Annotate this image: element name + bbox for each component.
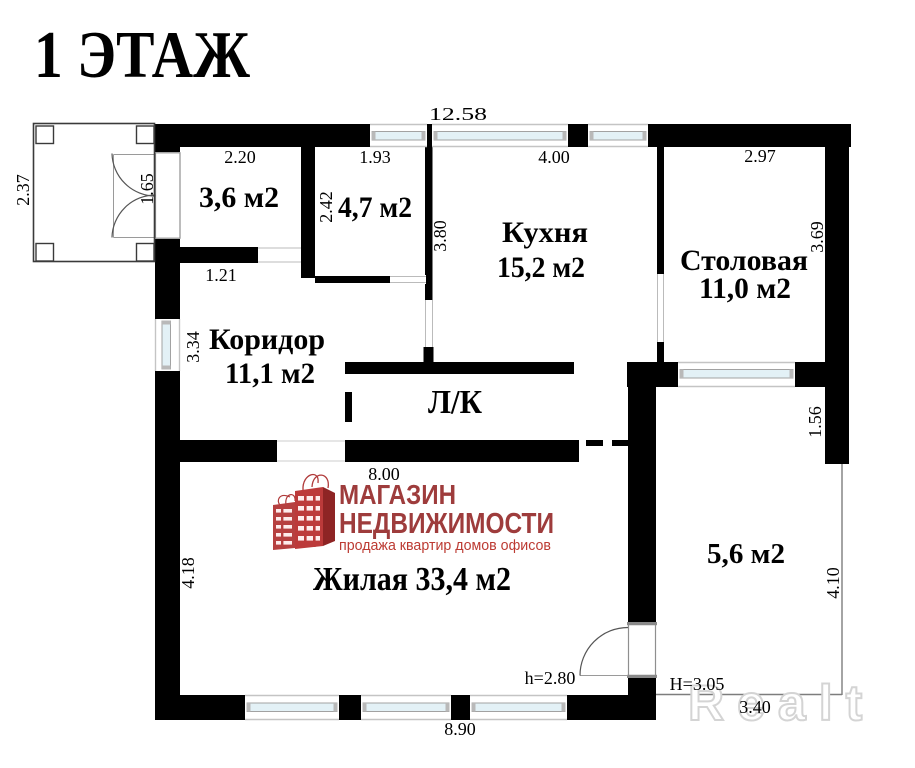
svg-text:3.34: 3.34 — [183, 331, 203, 363]
svg-text:3.40: 3.40 — [739, 697, 771, 717]
svg-text:Коридор: Коридор — [209, 323, 325, 356]
svg-text:3,6 м2: 3,6 м2 — [199, 181, 279, 214]
svg-text:h=2.80: h=2.80 — [525, 668, 576, 688]
svg-text:1.56: 1.56 — [805, 406, 825, 438]
svg-text:1.65: 1.65 — [137, 173, 157, 205]
svg-text:12.58: 12.58 — [429, 104, 487, 124]
svg-text:2.20: 2.20 — [224, 147, 256, 167]
svg-text:H=3.05: H=3.05 — [670, 674, 725, 694]
svg-text:11,1 м2: 11,1 м2 — [225, 357, 315, 390]
svg-text:11,0 м2: 11,0 м2 — [699, 272, 791, 305]
svg-text:3.69: 3.69 — [807, 221, 827, 253]
svg-text:МАГАЗИН: МАГАЗИН — [339, 479, 456, 510]
svg-text:продажа квартир домов офисов: продажа квартир домов офисов — [339, 537, 551, 554]
svg-text:3.80: 3.80 — [430, 220, 450, 252]
svg-text:4,7 м2: 4,7 м2 — [338, 191, 412, 224]
svg-text:Кухня: Кухня — [502, 216, 588, 249]
svg-text:2.37: 2.37 — [13, 174, 33, 206]
svg-text:5,6 м2: 5,6 м2 — [707, 538, 785, 570]
svg-text:Жилая 33,4 м2: Жилая 33,4 м2 — [313, 561, 511, 598]
svg-text:8.90: 8.90 — [444, 719, 476, 739]
svg-text:Л/К: Л/К — [428, 384, 482, 421]
svg-text:2.97: 2.97 — [744, 146, 776, 166]
svg-text:1.21: 1.21 — [205, 265, 237, 285]
svg-text:15,2 м2: 15,2 м2 — [497, 251, 585, 284]
svg-text:4.18: 4.18 — [178, 557, 198, 589]
svg-text:2.42: 2.42 — [316, 191, 336, 223]
svg-text:1 ЭТАЖ: 1 ЭТАЖ — [34, 18, 251, 92]
svg-text:1.93: 1.93 — [359, 147, 391, 167]
svg-text:4.10: 4.10 — [823, 567, 843, 599]
svg-text:НЕДВИЖИМОСТИ: НЕДВИЖИМОСТИ — [339, 508, 554, 540]
svg-text:4.00: 4.00 — [538, 147, 570, 167]
